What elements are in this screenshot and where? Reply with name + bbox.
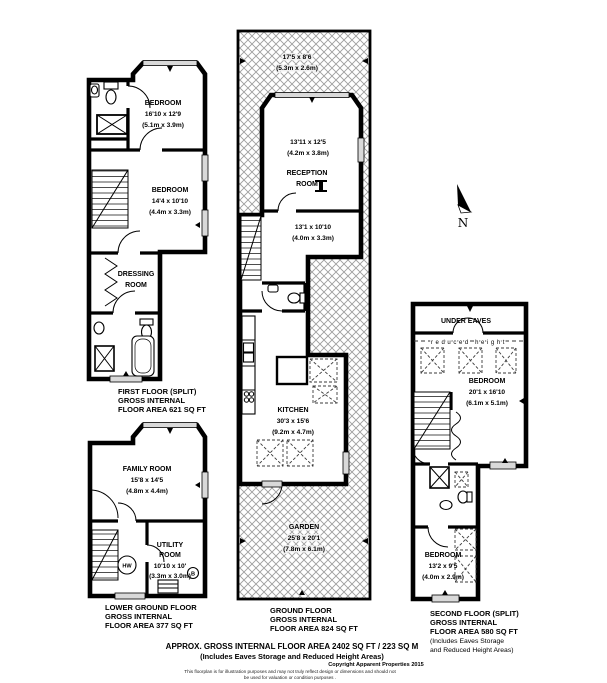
kitchen-island: [277, 357, 307, 384]
shower-icon: [97, 115, 127, 134]
room-dim-ft: 16'10 x 12'9: [145, 111, 181, 118]
room-dim-ft: 13'1 x 10'10: [295, 224, 331, 231]
sink-icon: [440, 501, 452, 510]
floor-label-line: FLOOR AREA 621 SQ FT: [118, 405, 206, 414]
floor-label-line: FLOOR AREA 824 SQ FT: [270, 624, 358, 633]
window: [358, 138, 364, 162]
floor-label-line: GROUND FLOOR: [270, 606, 332, 615]
window: [202, 472, 208, 498]
room-name-garden: GARDEN: [289, 524, 319, 531]
window: [202, 155, 208, 181]
room-dim-m: (6.1m x 5.1m): [466, 400, 508, 407]
north-letter: N: [458, 216, 469, 230]
floor-label-line: GROSS INTERNAL: [105, 612, 173, 621]
footer-area-note: (Includes Eaves Storage and Reduced Heig…: [200, 652, 384, 661]
room-name-reception: RECEPTION: [287, 170, 328, 177]
shower-icon: [430, 467, 449, 488]
north-arrow-icon: N: [457, 184, 471, 230]
hot-water-cylinder: HW: [118, 556, 136, 574]
garden-door: [262, 481, 282, 487]
room-name-dressing: DRESSING: [118, 271, 155, 278]
sink-icon: [268, 285, 278, 292]
floor-label-line: GROSS INTERNAL: [430, 618, 498, 627]
floorplan-drawing: BEDROOM 16'10 x 12'9 (5.1m x 3.9m) BEDRO…: [0, 0, 607, 683]
staircase: [92, 530, 118, 580]
room-name-reception: ROOM: [296, 181, 318, 188]
floorplan-page: BEDROOM 16'10 x 12'9 (5.1m x 3.9m) BEDRO…: [0, 0, 607, 683]
hw-label: HW: [122, 564, 132, 570]
floor-label-note: and Reduced Height Areas): [430, 647, 514, 654]
room-name-bedroom1-ff: BEDROOM: [145, 100, 182, 107]
room-name-bedroom-lower: BEDROOM: [425, 552, 462, 559]
lower-ground-plan: HW B FAMILY ROOM 15'8 x 14'5 (4.8m x 4.4…: [90, 423, 208, 631]
room-name-utility: ROOM: [159, 552, 181, 559]
reduced-height-label: reduced height: [431, 340, 507, 346]
room-name-utility: UTILITY: [157, 542, 184, 549]
appliance-icon: [158, 580, 178, 593]
room-dim-ft: 13'11 x 12'5: [290, 139, 326, 146]
room-dim-ft: 25'8 x 20'1: [288, 535, 321, 542]
footer-disclaimer-line1: This floorplan is for illustration purpo…: [184, 669, 396, 674]
room-dim-m: (9.2m x 4.7m): [272, 429, 314, 436]
room-dim-m: (5.1m x 3.9m): [142, 122, 184, 129]
window: [115, 593, 145, 599]
boiler-label: B: [191, 572, 195, 578]
room-dim-ft: 20'1 x 16'10: [469, 389, 505, 396]
room-dim-ft: 30'3 x 15'6: [277, 418, 310, 425]
floor-label-note: (Includes Eaves Storage: [430, 638, 504, 645]
ground-floor-plan: 17'5 x 8'6 (5.3m x 2.6m) 13'11 x 12'5 (4…: [238, 31, 370, 633]
terrace-dim-m: (5.3m x 2.6m): [276, 65, 318, 72]
footer-area-summary: APPROX. GROSS INTERNAL FLOOR AREA 2402 S…: [166, 642, 419, 651]
room-dim-m: (3.3m x 3.0m): [149, 573, 191, 580]
staircase: [414, 392, 450, 449]
second-floor-plan: reduced height: [412, 304, 526, 654]
room-dim-m: (4.8m x 4.4m): [126, 488, 168, 495]
footer-disclaimer-line2: be used for valuation or condition purpo…: [244, 675, 336, 680]
bay-window: [275, 93, 349, 98]
bay-window: [143, 423, 197, 428]
floor-label-line: LOWER GROUND FLOOR: [105, 603, 197, 612]
bathtub-icon: [132, 336, 154, 376]
window: [490, 462, 516, 469]
window: [110, 376, 142, 382]
room-dim-ft: 15'8 x 14'5: [131, 477, 164, 484]
bay-window: [143, 61, 197, 66]
room-name-kitchen: KITCHEN: [277, 407, 308, 414]
first-floor-plan: BEDROOM 16'10 x 12'9 (5.1m x 3.9m) BEDRO…: [89, 61, 208, 415]
toilet-icon: [288, 293, 305, 303]
floor-label-line: FLOOR AREA 377 SQ FT: [105, 621, 193, 630]
room-dim-m: (4.4m x 3.3m): [149, 209, 191, 216]
floor-label-line: FIRST FLOOR (SPLIT): [118, 387, 197, 396]
room-name-bedroom2-ff: BEDROOM: [152, 187, 189, 194]
under-eaves-label: UNDER EAVES: [441, 318, 491, 325]
window: [343, 452, 349, 474]
floor-label-line: GROSS INTERNAL: [270, 615, 338, 624]
room-dim-ft: 14'4 x 10'10: [152, 198, 188, 205]
toilet-icon: [458, 491, 472, 503]
staircase: [241, 216, 261, 280]
room-dim-m: (7.8m x 6.1m): [283, 546, 325, 553]
room-name-family: FAMILY ROOM: [123, 466, 172, 473]
floor-label-line: FLOOR AREA 580 SQ FT: [430, 627, 518, 636]
sink-icon: [94, 322, 104, 334]
room-name-dressing: ROOM: [125, 282, 147, 289]
window: [202, 210, 208, 236]
footer: APPROX. GROSS INTERNAL FLOOR AREA 2402 S…: [166, 642, 424, 680]
sink-icon: [90, 84, 99, 97]
floor-label-line: SECOND FLOOR (SPLIT): [430, 609, 519, 618]
room-dim-ft: 10'10 x 10': [154, 563, 187, 570]
footer-copyright: Copyright Apparent Properties 2015: [328, 662, 424, 668]
terrace-dim-ft: 17'5 x 8'6: [283, 54, 312, 61]
room-dim-m: (4.0m x 2.9m): [422, 574, 464, 581]
room-dim-m: (4.0m x 3.3m): [292, 235, 334, 242]
window: [432, 595, 459, 602]
kitchen-counter: [242, 316, 255, 414]
shower-icon: [95, 346, 114, 371]
staircase: [92, 170, 128, 228]
room-dim-m: (4.2m x 3.8m): [287, 150, 329, 157]
room-dim-ft: 13'2 x 9'5: [429, 563, 458, 570]
room-name-bedroom-upper: BEDROOM: [469, 378, 506, 385]
floor-label-line: GROSS INTERNAL: [118, 396, 186, 405]
